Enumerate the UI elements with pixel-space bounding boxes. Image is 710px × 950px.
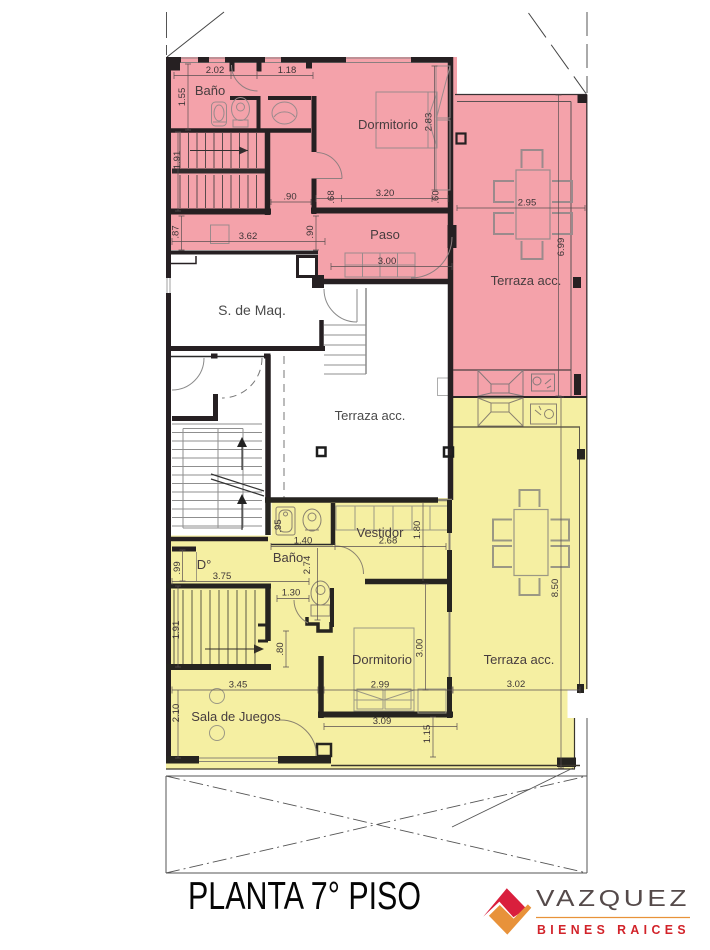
svg-text:S. de Maq.: S. de Maq. (218, 302, 286, 318)
svg-text:D°: D° (197, 557, 212, 572)
svg-text:.90: .90 (283, 192, 296, 203)
svg-text:.80: .80 (275, 642, 286, 655)
svg-text:3.00: 3.00 (378, 256, 397, 267)
svg-text:1.30: 1.30 (282, 588, 301, 599)
svg-text:3.02: 3.02 (507, 679, 526, 690)
svg-text:1.80: 1.80 (412, 521, 423, 540)
svg-text:1.55: 1.55 (177, 88, 188, 107)
svg-text:Baño: Baño (195, 83, 225, 98)
svg-text:3.20: 3.20 (376, 188, 395, 199)
svg-text:Terraza acc.: Terraza acc. (491, 273, 562, 288)
svg-text:2.74: 2.74 (302, 556, 313, 575)
svg-text:VAZQUEZ: VAZQUEZ (536, 885, 690, 911)
svg-text:1.15: 1.15 (422, 725, 433, 744)
svg-text:6.99: 6.99 (556, 238, 567, 257)
svg-text:Dormitorio: Dormitorio (352, 652, 412, 667)
svg-text:.99: .99 (172, 561, 183, 574)
svg-text:Baño: Baño (273, 550, 303, 565)
svg-text:2.68: 2.68 (379, 536, 398, 547)
svg-text:Sala de Juegos: Sala de Juegos (191, 709, 281, 724)
svg-text:3.00: 3.00 (415, 639, 426, 658)
svg-text:2.02: 2.02 (206, 65, 225, 76)
svg-text:.60: .60 (431, 190, 442, 203)
svg-text:.90: .90 (305, 225, 316, 238)
svg-text:2.10: 2.10 (171, 704, 182, 723)
svg-text:Terraza acc.: Terraza acc. (484, 652, 555, 667)
svg-text:.95: .95 (273, 519, 284, 532)
svg-text:Dormitorio: Dormitorio (358, 117, 418, 132)
svg-text:Terraza acc.: Terraza acc. (335, 408, 406, 423)
svg-text:1.18: 1.18 (278, 65, 297, 76)
svg-text:.87: .87 (171, 225, 182, 238)
svg-text:2.99: 2.99 (371, 680, 390, 691)
svg-text:BIENES RAICES: BIENES RAICES (537, 923, 690, 937)
svg-text:1.91: 1.91 (171, 621, 182, 640)
svg-text:1.40: 1.40 (294, 536, 313, 547)
svg-text:PLANTA 7° PISO: PLANTA 7° PISO (188, 875, 421, 918)
svg-text:Paso: Paso (370, 227, 400, 242)
svg-text:2.95: 2.95 (518, 198, 537, 209)
svg-text:2.83: 2.83 (424, 113, 435, 132)
svg-text:.68: .68 (326, 190, 337, 203)
svg-text:3.75: 3.75 (213, 571, 232, 582)
svg-text:1.91: 1.91 (172, 151, 183, 170)
svg-text:8.50: 8.50 (550, 579, 561, 598)
svg-text:3.09: 3.09 (373, 716, 392, 727)
svg-text:3.45: 3.45 (229, 680, 248, 691)
svg-text:3.62: 3.62 (239, 231, 258, 242)
